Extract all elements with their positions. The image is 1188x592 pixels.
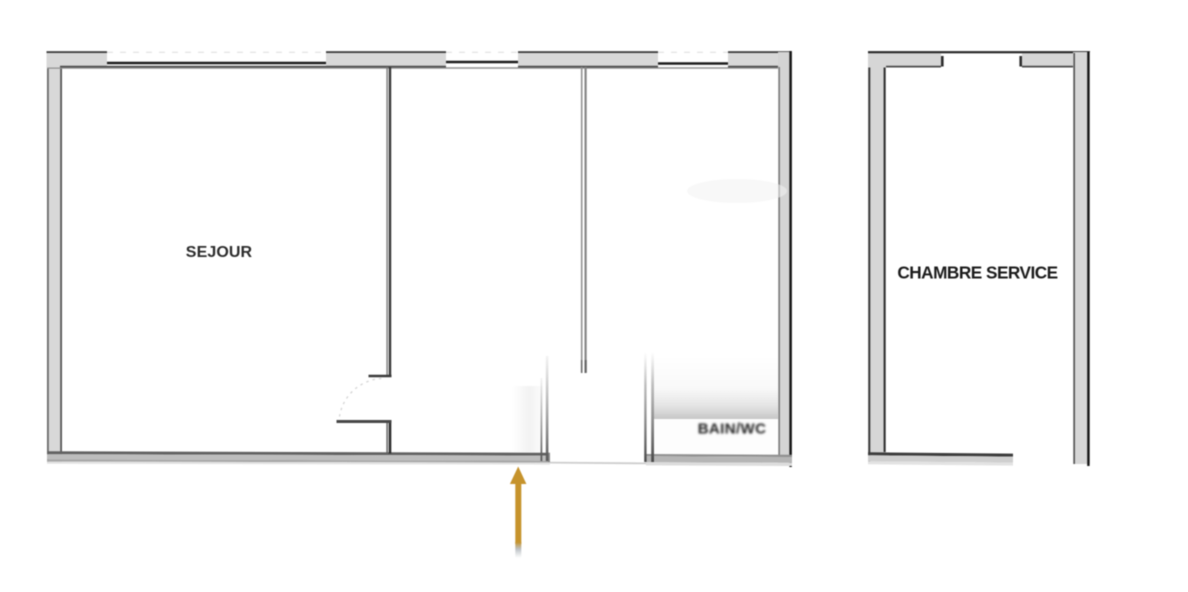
- svg-text:CHAMBRE SERVICE: CHAMBRE SERVICE: [897, 263, 1057, 283]
- svg-text:BAIN/WC: BAIN/WC: [698, 421, 767, 438]
- svg-text:SEJOUR: SEJOUR: [186, 244, 253, 261]
